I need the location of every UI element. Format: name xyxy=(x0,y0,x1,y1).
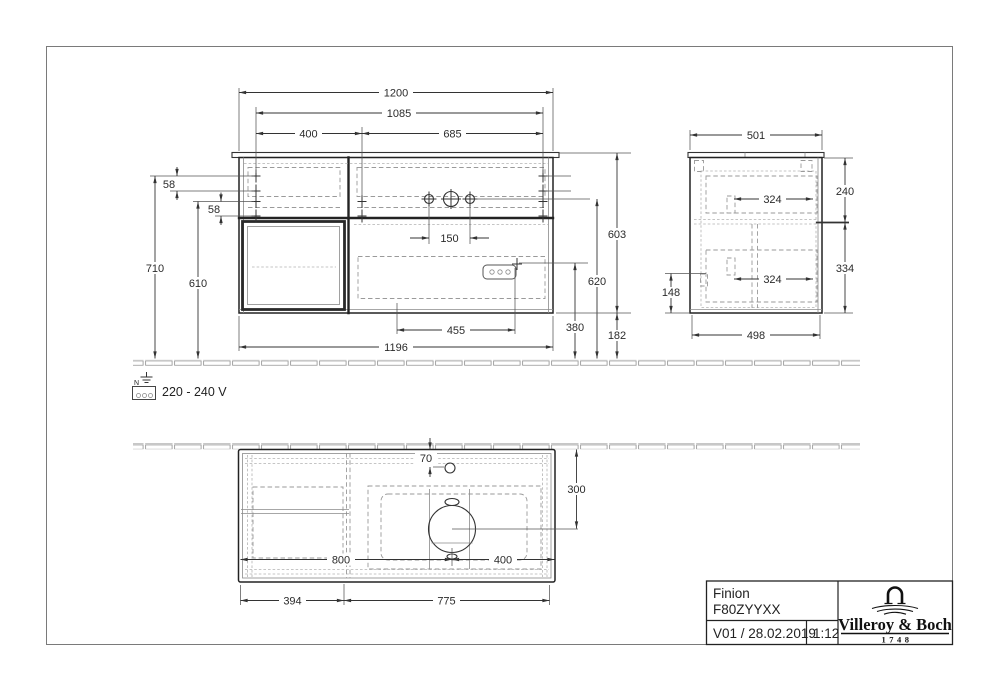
socket-outlet xyxy=(483,258,522,279)
dim-300: 300 xyxy=(567,484,585,496)
neutral-label: N xyxy=(134,380,139,387)
dim-324-top: 324 xyxy=(763,194,781,206)
plan-view: 70 300 800 400 394 775 xyxy=(239,438,592,608)
dim-775: 775 xyxy=(437,596,455,608)
dim-610: 610 xyxy=(189,278,207,290)
dim-380: 380 xyxy=(566,322,584,334)
brand-name: Villeroy & Boch xyxy=(838,615,952,634)
dim-150: 150 xyxy=(440,233,458,245)
dim-70: 70 xyxy=(420,453,432,465)
brand-year: 1748 xyxy=(882,635,913,645)
dim-58-top: 58 xyxy=(163,179,175,191)
dim-324-bottom: 324 xyxy=(763,274,781,286)
front-dimensions: 1200 1085 400 685 58 58 710 xyxy=(141,87,631,359)
version-date: V01 / 28.02.2019 xyxy=(713,626,816,641)
ground-icon xyxy=(141,372,153,383)
cabinet-body xyxy=(239,158,553,314)
technical-drawing: 1200 1085 400 685 58 58 710 xyxy=(0,0,1000,694)
dim-400-plan: 400 xyxy=(494,555,512,567)
dim-394: 394 xyxy=(283,596,301,608)
dim-240: 240 xyxy=(836,186,854,198)
drawing-sheet: 1200 1085 400 685 58 58 710 xyxy=(0,0,1000,694)
front-view: 1200 1085 400 685 58 58 710 xyxy=(141,87,631,359)
dim-620: 620 xyxy=(588,276,606,288)
floor-line-upper xyxy=(133,360,860,366)
side-dimensions: 501 324 240 334 324 148 498 xyxy=(657,129,859,342)
dim-603: 603 xyxy=(608,229,626,241)
wall-line-plan xyxy=(133,443,860,449)
open-shelf xyxy=(243,222,345,310)
overflow-hole xyxy=(445,463,455,473)
side-view: 501 324 240 334 324 148 498 xyxy=(657,129,859,342)
article-number: F80ZYYXX xyxy=(713,602,781,617)
dim-400: 400 xyxy=(299,129,317,141)
dim-501: 501 xyxy=(747,130,765,142)
dim-710: 710 xyxy=(146,263,164,275)
dim-800: 800 xyxy=(332,555,350,567)
cabinet-side xyxy=(690,158,822,314)
power-symbol: N 220 - 240 V xyxy=(133,372,228,400)
dim-334: 334 xyxy=(836,263,854,275)
product-name: Finion xyxy=(713,586,750,601)
voltage-label: 220 - 240 V xyxy=(162,385,227,399)
dim-182: 182 xyxy=(608,330,626,342)
dim-498: 498 xyxy=(747,330,765,342)
faucet-holes xyxy=(422,189,478,209)
dim-685: 685 xyxy=(443,129,461,141)
dim-1196: 1196 xyxy=(384,342,408,354)
drawing-scale: 1:12 xyxy=(813,626,839,641)
mounting-marks xyxy=(252,170,548,223)
dim-1200: 1200 xyxy=(384,88,408,100)
dim-58-mid: 58 xyxy=(208,204,220,216)
dim-148: 148 xyxy=(662,287,680,299)
dim-455: 455 xyxy=(447,325,465,337)
dim-1085: 1085 xyxy=(387,108,411,120)
title-block: Finion F80ZYYXX V01 / 28.02.2019 1:12 Vi… xyxy=(707,581,953,645)
